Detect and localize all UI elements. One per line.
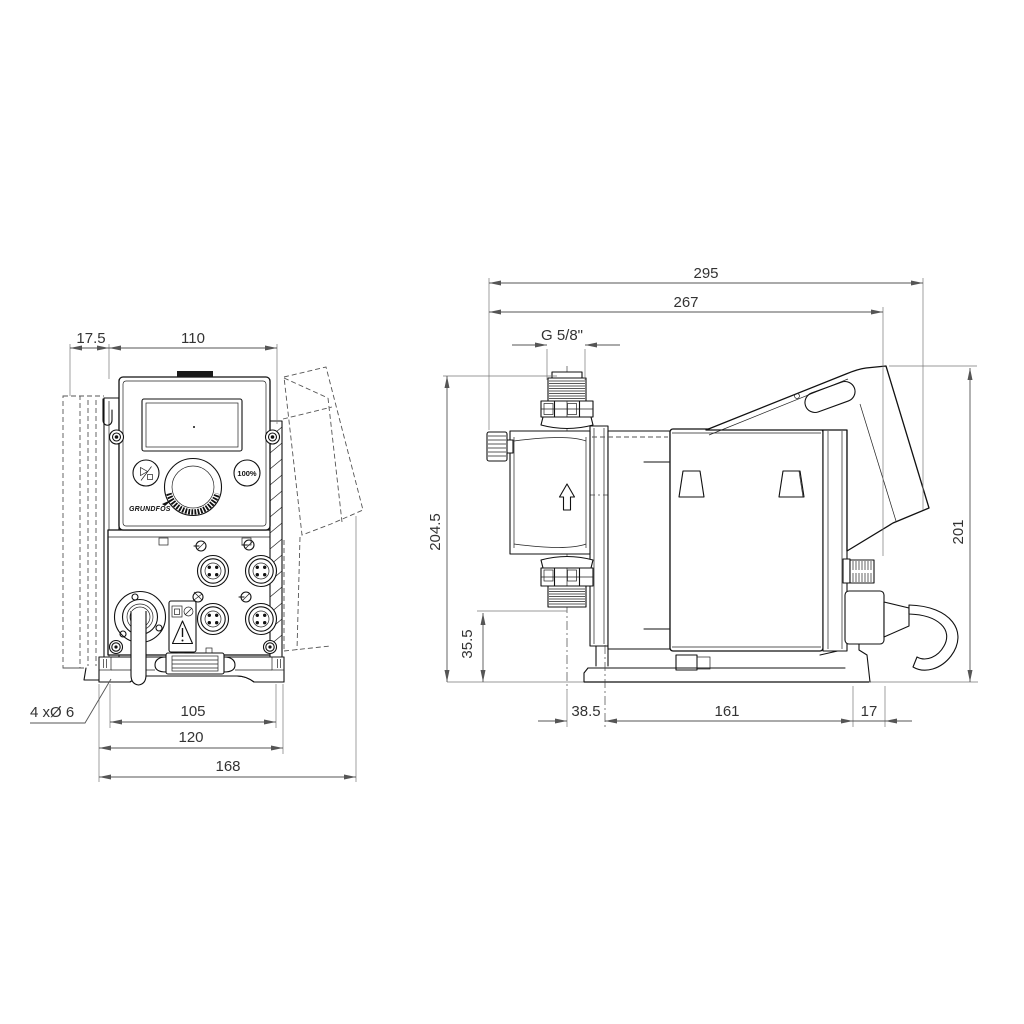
corner-screw	[264, 641, 277, 654]
dim-35-5-label: 35.5	[459, 629, 476, 658]
clip	[679, 471, 704, 497]
strain-relief	[884, 602, 909, 637]
clip	[779, 471, 804, 497]
power-cable-side	[909, 605, 958, 670]
side-view: 295 267 G 5/8" 204.5 35.5 38.5 161	[427, 265, 978, 727]
connector-socket	[198, 604, 229, 635]
dim-267-label: 267	[673, 294, 698, 311]
holes-note-label: 4 xØ 6	[30, 704, 74, 721]
wall-plate-hidden	[63, 396, 104, 680]
dim-17-5-label: 17.5	[76, 330, 105, 347]
connector-socket	[246, 556, 277, 587]
dim-204-5-label: 204.5	[427, 513, 444, 551]
click-wheel	[165, 459, 222, 516]
corner-screw	[110, 641, 123, 654]
suction-valve	[541, 557, 593, 608]
discharge-valve	[541, 372, 593, 429]
main-housing	[670, 429, 823, 651]
control-panel: 100% GRUNDFOS	[110, 371, 280, 530]
dim-201-label: 201	[950, 519, 967, 544]
top-tab	[177, 371, 213, 377]
side-screw	[266, 430, 280, 444]
hood-hidden-front	[283, 367, 363, 651]
side-screw	[110, 430, 124, 444]
warning-label	[169, 601, 196, 652]
pump-body-side	[586, 426, 847, 651]
logo-text: GRUNDFOS	[129, 506, 171, 513]
dimensional-drawing-page: 100% GRUNDFOS	[0, 0, 1024, 1024]
dim-105-label: 105	[180, 703, 205, 720]
mid-housing	[608, 431, 670, 649]
cable-boss	[845, 591, 884, 644]
vent-screw	[487, 432, 513, 461]
dim-38-5-label: 38.5	[571, 703, 600, 720]
connector-socket	[198, 556, 229, 587]
hundred-percent-label: 100%	[237, 469, 257, 478]
dim-17-label: 17	[861, 703, 878, 720]
mains-connection	[843, 559, 958, 670]
power-cable-front	[131, 611, 146, 685]
dim-110-label: 110	[181, 330, 205, 347]
dim-295-label: 295	[693, 265, 718, 282]
thread-size-label: G 5/8"	[541, 327, 583, 344]
dim-161-label: 161	[714, 703, 739, 720]
dim-120-label: 120	[178, 729, 203, 746]
head-flange-plate	[590, 426, 608, 646]
front-view: 100% GRUNDFOS	[30, 330, 363, 782]
dim-168-label: 168	[215, 758, 240, 775]
connector-socket	[246, 604, 277, 635]
rear-cover-edge	[823, 429, 847, 651]
dosing-head	[487, 366, 593, 690]
head-body	[510, 431, 590, 554]
technical-drawing: 100% GRUNDFOS	[0, 0, 1024, 1024]
